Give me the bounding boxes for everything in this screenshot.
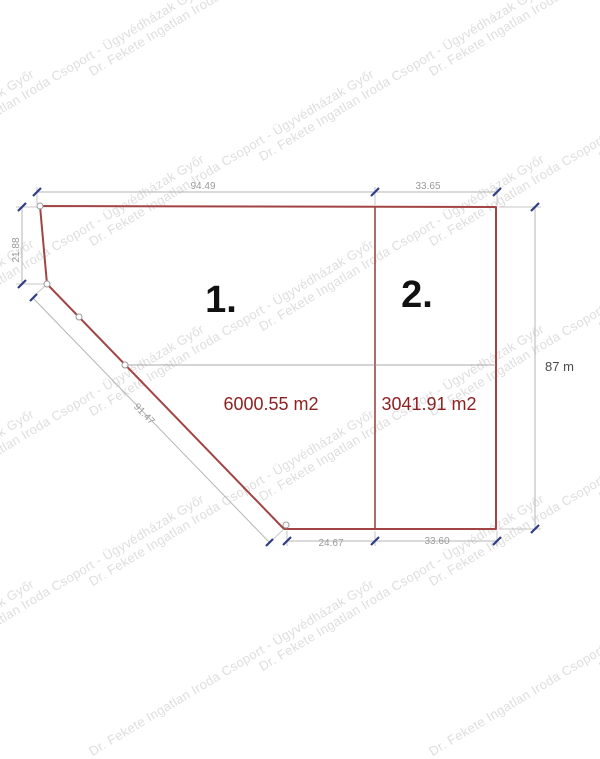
dimension-label-left-side: 21.88: [11, 237, 22, 262]
parcel-2-number: 2.: [401, 274, 433, 316]
boundary-point-marker: [283, 522, 289, 528]
parcel-1-area: 6000.55 m2: [223, 394, 318, 414]
boundary-point-marker: [44, 281, 50, 287]
parcel-2-area: 3041.91 m2: [381, 394, 476, 414]
dimension-label-top-right: 33.65: [415, 181, 440, 192]
plot-boundary-outline: [40, 206, 496, 529]
boundary-point-marker: [37, 203, 43, 209]
dimension-label-right-side: 87 m: [545, 359, 574, 374]
dimension-label-bottom-left: 24.67: [318, 538, 343, 549]
parcel-1-number: 1.: [205, 279, 237, 321]
dimension-label-top-left: 94.49: [190, 181, 215, 192]
boundary-point-marker: [122, 362, 128, 368]
dimension-label-bottom-right: 33.60: [424, 536, 449, 547]
dimension-tick: [30, 294, 37, 301]
boundary-point-marker: [76, 314, 82, 320]
survey-sketch-page: Dr. Fekete Ingatlan Iroda Csoport - Ügyv…: [0, 0, 600, 629]
parcel-drawing: 94.49 33.65 21.88 91.47 24.67 33.60 87 m…: [0, 0, 600, 629]
dimension-label-diagonal: 91.47: [131, 401, 157, 427]
